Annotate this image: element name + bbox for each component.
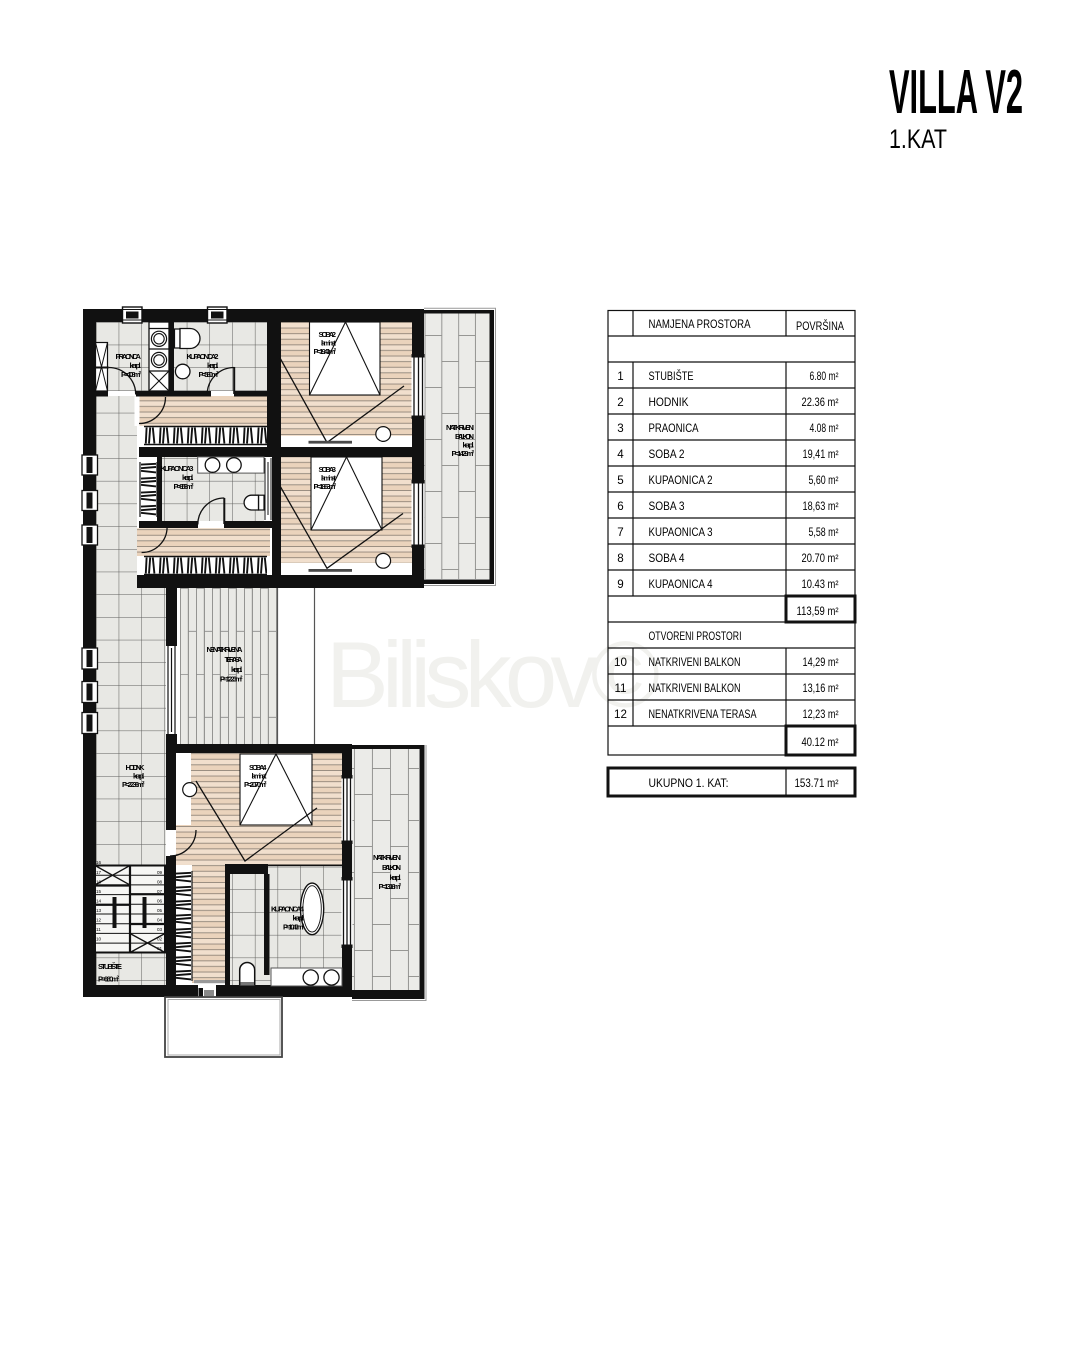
svg-text:SOBA 2: SOBA 2 bbox=[649, 448, 685, 461]
svg-text:P=12.23m²: P=12.23m² bbox=[220, 675, 243, 684]
svg-text:1: 1 bbox=[617, 370, 623, 383]
svg-text:11: 11 bbox=[96, 927, 101, 932]
svg-text:KUPAONICA 2: KUPAONICA 2 bbox=[649, 474, 713, 487]
svg-text:3: 3 bbox=[617, 422, 623, 435]
svg-text:NATKRIVENI: NATKRIVENI bbox=[446, 423, 474, 432]
svg-text:03: 03 bbox=[157, 927, 163, 932]
svg-text:02: 02 bbox=[157, 937, 163, 942]
svg-text:09: 09 bbox=[157, 870, 163, 875]
svg-text:8: 8 bbox=[617, 552, 623, 565]
svg-text:KUPAONICA 4: KUPAONICA 4 bbox=[271, 905, 305, 914]
svg-text:14: 14 bbox=[96, 899, 102, 904]
svg-text:P=13.16m²: P=13.16m² bbox=[379, 882, 402, 891]
svg-text:40.12 m²: 40.12 m² bbox=[802, 736, 839, 749]
svg-text:4.08 m²: 4.08 m² bbox=[810, 422, 839, 435]
svg-text:SOBA 3: SOBA 3 bbox=[649, 500, 685, 513]
svg-text:KUPAONICA 3: KUPAONICA 3 bbox=[161, 464, 194, 473]
svg-text:5,60 m²: 5,60 m² bbox=[809, 474, 839, 487]
svg-text:14,29 m²: 14,29 m² bbox=[803, 656, 839, 669]
svg-text:15: 15 bbox=[96, 889, 102, 894]
svg-text:5: 5 bbox=[617, 474, 623, 487]
svg-text:10: 10 bbox=[614, 656, 627, 669]
svg-text:P=20.70m²: P=20.70m² bbox=[244, 780, 267, 789]
svg-text:12: 12 bbox=[614, 708, 627, 721]
svg-text:ker.pl.: ker.pl. bbox=[207, 361, 219, 370]
svg-text:08: 08 bbox=[157, 880, 163, 885]
svg-text:HODNIK: HODNIK bbox=[649, 396, 689, 409]
svg-text:NATKRIVENI BALKON: NATKRIVENI BALKON bbox=[649, 682, 741, 695]
svg-text:153.71 m²: 153.71 m² bbox=[795, 777, 839, 790]
svg-text:P=10.43m²: P=10.43m² bbox=[283, 923, 304, 932]
svg-text:PRAONICA: PRAONICA bbox=[649, 422, 699, 435]
svg-text:6: 6 bbox=[617, 500, 623, 513]
svg-text:NATKRIVENI BALKON: NATKRIVENI BALKON bbox=[649, 656, 741, 669]
svg-text:P=5.60m²: P=5.60m² bbox=[199, 370, 219, 379]
svg-text:KUPAONICA 4: KUPAONICA 4 bbox=[649, 578, 713, 591]
svg-text:20.70 m²: 20.70 m² bbox=[802, 552, 839, 565]
svg-text:UKUPNO 1. KAT:: UKUPNO 1. KAT: bbox=[649, 777, 729, 790]
svg-text:P=14.29m²: P=14.29m² bbox=[452, 449, 475, 458]
svg-text:1.KAT: 1.KAT bbox=[889, 124, 947, 154]
svg-text:05: 05 bbox=[157, 908, 163, 913]
svg-text:6.80 m²: 6.80 m² bbox=[810, 370, 839, 383]
svg-text:113,59 m²: 113,59 m² bbox=[797, 605, 839, 618]
svg-text:7: 7 bbox=[617, 526, 623, 539]
svg-text:9: 9 bbox=[617, 578, 623, 591]
svg-text:ker.pl.: ker.pl. bbox=[293, 914, 305, 923]
svg-text:06: 06 bbox=[157, 899, 163, 904]
svg-text:PRAONICA: PRAONICA bbox=[116, 352, 142, 361]
svg-text:P=18.63m²: P=18.63m² bbox=[314, 482, 337, 491]
svg-text:BALKON: BALKON bbox=[382, 863, 401, 872]
svg-text:4: 4 bbox=[617, 448, 624, 461]
svg-text:10.43 m²: 10.43 m² bbox=[802, 578, 839, 591]
svg-text:22.36 m²: 22.36 m² bbox=[802, 396, 839, 409]
svg-text:5,58 m²: 5,58 m² bbox=[809, 526, 839, 539]
svg-text:17: 17 bbox=[96, 870, 102, 875]
svg-text:NENATKRIVENA TERASA: NENATKRIVENA TERASA bbox=[649, 708, 757, 721]
svg-text:11: 11 bbox=[614, 682, 626, 695]
svg-text:P=4.08m²: P=4.08m² bbox=[121, 370, 141, 379]
svg-text:NATKRIVENI: NATKRIVENI bbox=[373, 853, 401, 862]
svg-text:SOBA 4: SOBA 4 bbox=[649, 552, 685, 565]
svg-text:STUBIŠTE: STUBIŠTE bbox=[649, 370, 694, 383]
svg-text:16: 16 bbox=[96, 860, 102, 865]
svg-text:04: 04 bbox=[157, 918, 163, 923]
svg-text:16: 16 bbox=[96, 880, 102, 885]
svg-text:POVRŠINA: POVRŠINA bbox=[796, 320, 844, 333]
svg-text:TERASA: TERASA bbox=[225, 655, 244, 664]
svg-text:ker.pl.: ker.pl. bbox=[182, 473, 194, 482]
svg-text:P=19.41m²: P=19.41m² bbox=[314, 347, 337, 356]
svg-text:OTVORENI PROSTORI: OTVORENI PROSTORI bbox=[649, 630, 742, 643]
svg-text:ker.pl.: ker.pl. bbox=[231, 665, 243, 674]
svg-text:P=6.58m²: P=6.58m² bbox=[174, 482, 194, 491]
svg-text:VILLA V2: VILLA V2 bbox=[889, 58, 1023, 127]
svg-text:18,63 m²: 18,63 m² bbox=[803, 500, 839, 513]
svg-text:01: 01 bbox=[157, 946, 163, 951]
svg-text:NENATKRIVENA: NENATKRIVENA bbox=[207, 645, 244, 654]
svg-text:NAMJENA PROSTORA: NAMJENA PROSTORA bbox=[649, 318, 751, 331]
svg-text:P=22.36m²: P=22.36m² bbox=[122, 780, 145, 789]
svg-text:12,23 m²: 12,23 m² bbox=[803, 708, 839, 721]
svg-text:07: 07 bbox=[157, 889, 163, 894]
svg-text:ker.pl.: ker.pl. bbox=[390, 873, 402, 882]
svg-text:STUBIŠTE: STUBIŠTE bbox=[98, 962, 122, 971]
svg-text:2: 2 bbox=[617, 396, 623, 409]
svg-text:13: 13 bbox=[96, 908, 102, 913]
svg-text:19,41 m²: 19,41 m² bbox=[803, 448, 839, 461]
svg-text:P=6.80m²: P=6.80m² bbox=[98, 975, 119, 984]
svg-text:10: 10 bbox=[96, 937, 102, 942]
svg-text:KUPAONICA 3: KUPAONICA 3 bbox=[649, 526, 713, 539]
svg-text:ker.pl.: ker.pl. bbox=[130, 361, 142, 370]
svg-text:KUPAONICA2: KUPAONICA2 bbox=[187, 352, 219, 361]
svg-text:12: 12 bbox=[96, 918, 102, 923]
svg-text:13,16 m²: 13,16 m² bbox=[803, 682, 839, 695]
